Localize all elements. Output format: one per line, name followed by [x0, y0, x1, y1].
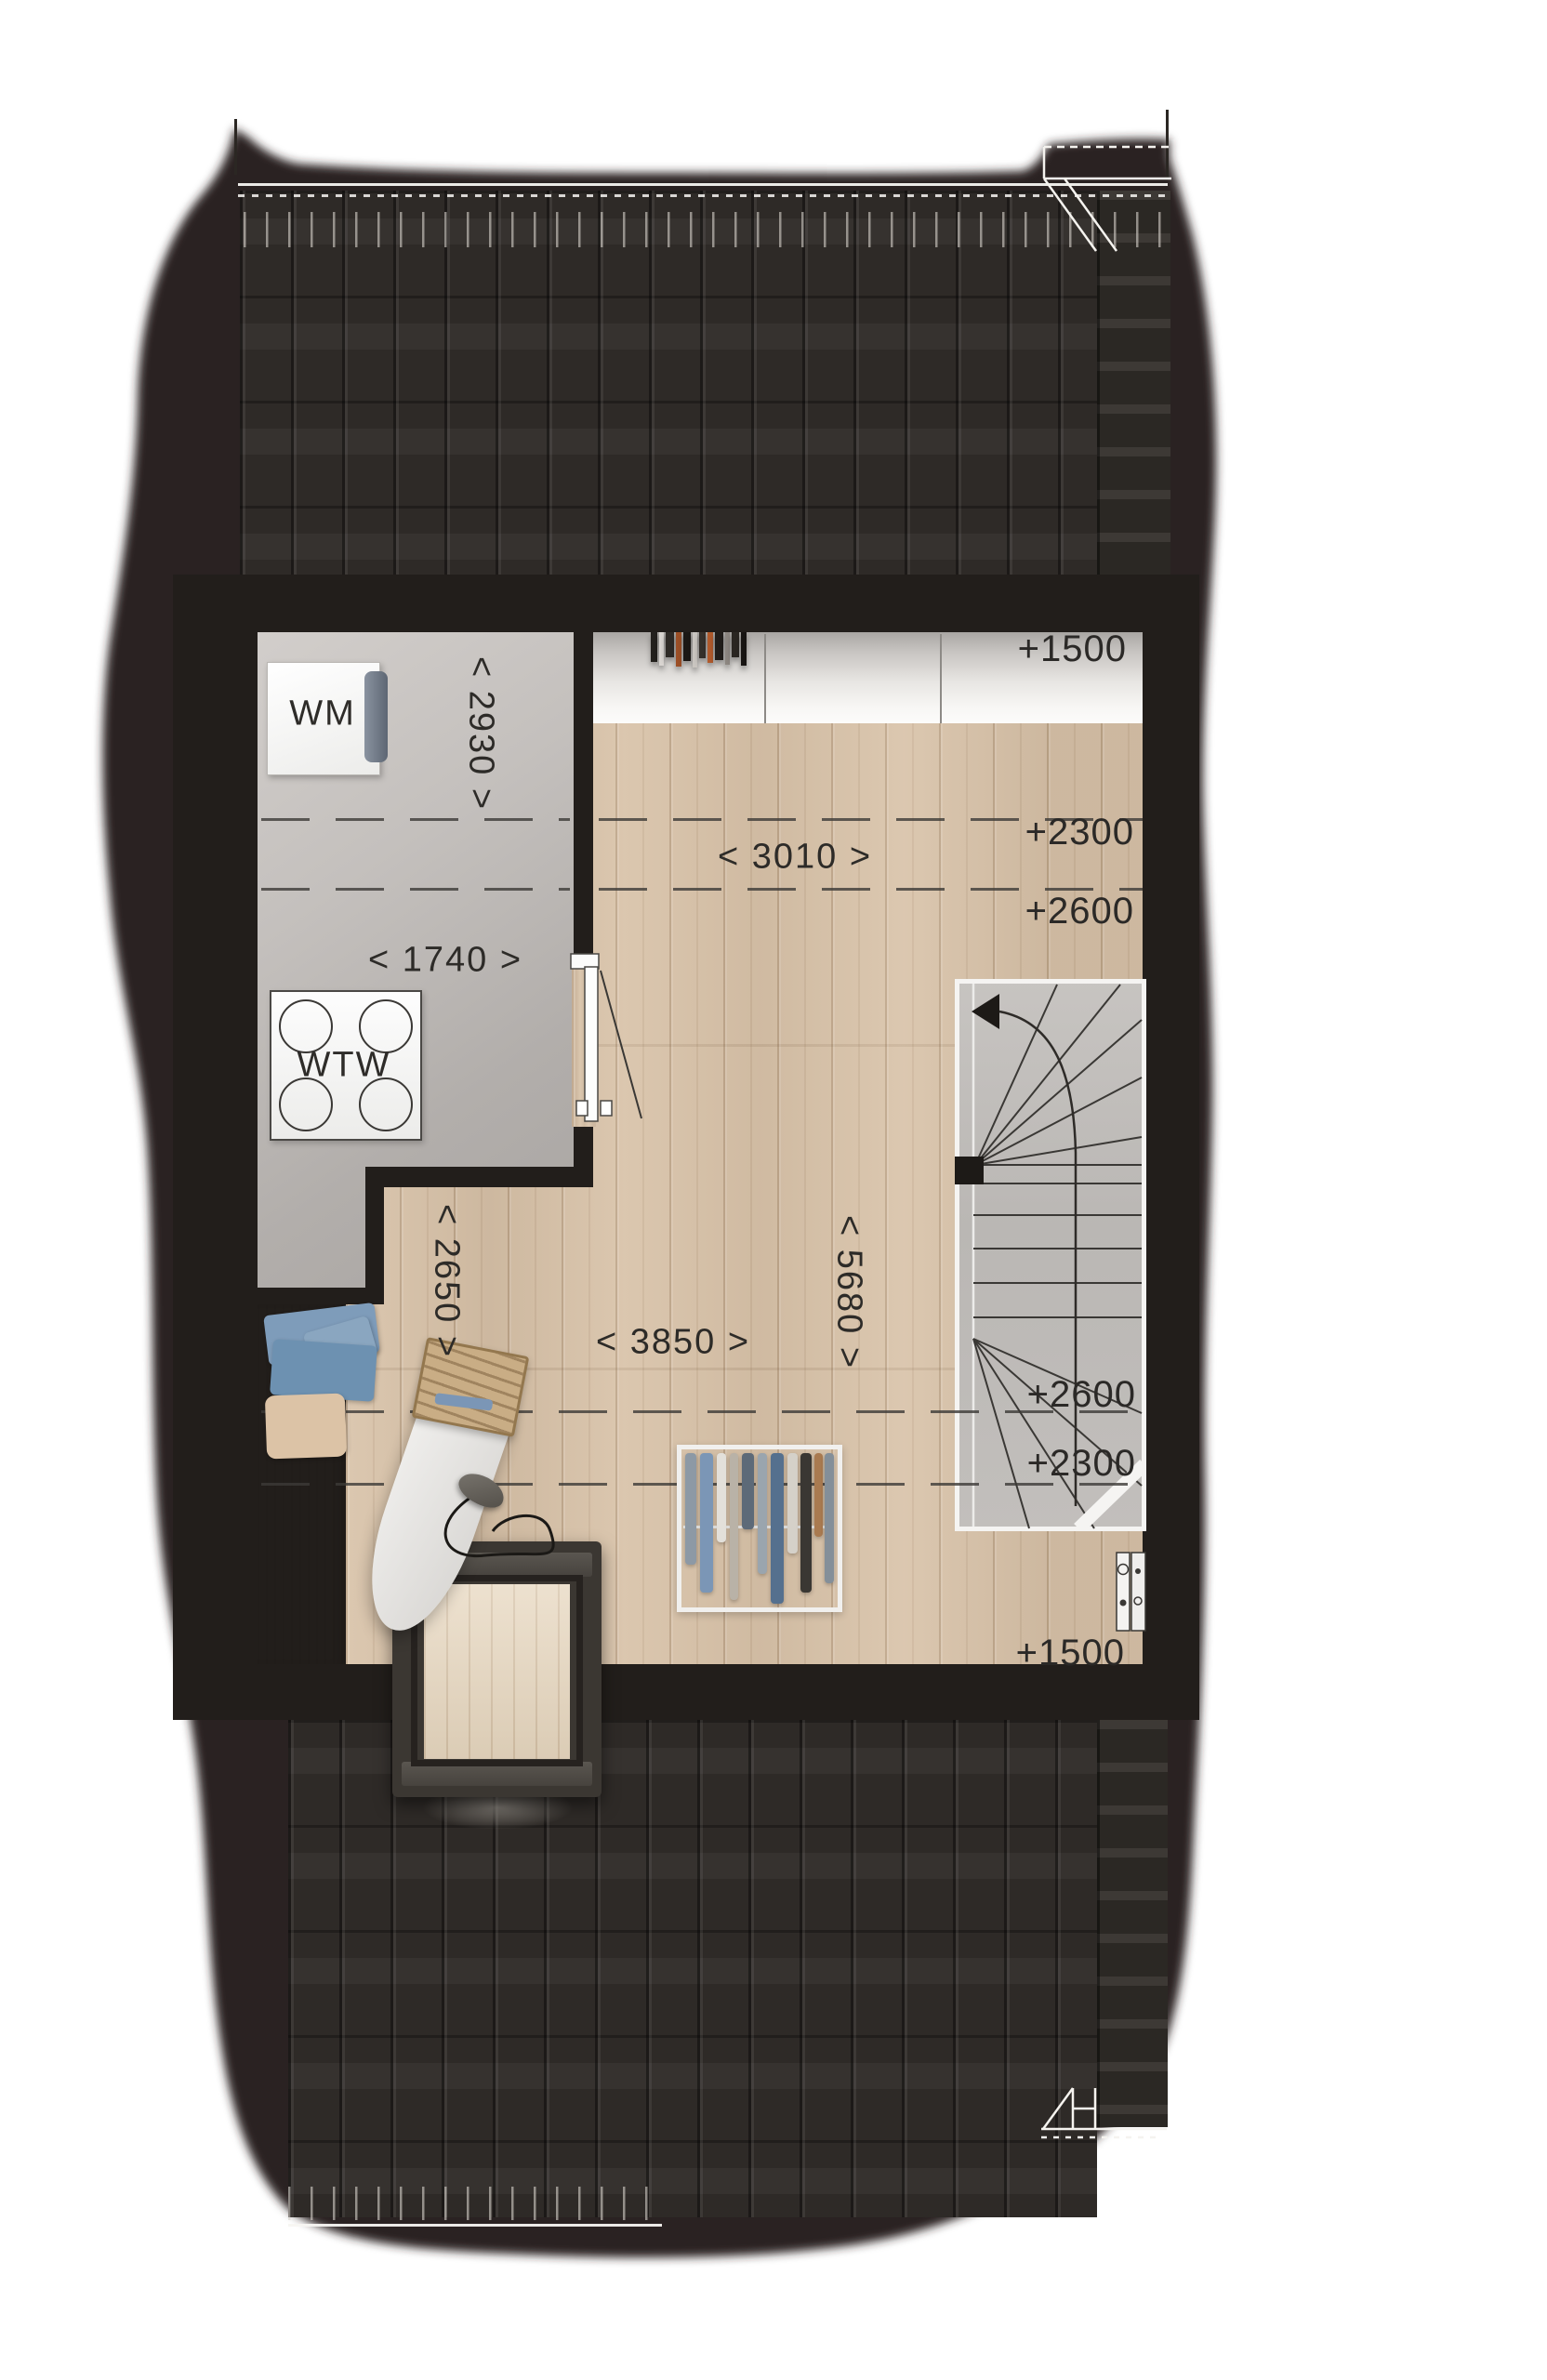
hanging-garment — [730, 1453, 738, 1600]
folded-shirt — [265, 1394, 347, 1460]
roof-ridge-strip-bottom-right — [1097, 1720, 1168, 2127]
hanging-garment — [685, 1453, 696, 1565]
book-spine — [715, 632, 723, 660]
headroom-dash-lower-1 — [261, 1410, 1143, 1413]
height-marker-upper-b: +2600 — [1025, 891, 1134, 932]
wtw-fan-circle — [279, 1078, 333, 1131]
hanging-garment — [825, 1453, 834, 1583]
iron-cable — [409, 1464, 604, 1594]
roof-eave-dotted-top — [238, 194, 1168, 197]
book-spine — [699, 632, 706, 658]
dimension-room-depth-right: < 5680 > — [829, 1215, 869, 1369]
hanging-garment — [814, 1453, 823, 1537]
clothes-rack — [677, 1445, 842, 1612]
roof-eave-line-bottom-left — [288, 2224, 662, 2227]
hanging-garment — [771, 1453, 784, 1604]
shelf-divider-line-2 — [940, 634, 942, 723]
hanging-garment — [758, 1453, 767, 1574]
ridge-end-line-top-left — [234, 119, 237, 175]
washing-machine-door — [364, 671, 388, 762]
door-hinge — [601, 1101, 612, 1116]
height-marker-lower-b: +2300 — [1027, 1443, 1136, 1485]
dimension-room-width-top: < 3010 > — [718, 838, 872, 878]
roof-detail-top-right — [1037, 130, 1176, 256]
hanging-garment — [742, 1453, 754, 1529]
headroom-dash-upper-1-left — [261, 818, 570, 821]
book-spine — [693, 632, 697, 668]
hanging-garment — [700, 1453, 713, 1593]
hanging-garment — [717, 1453, 726, 1542]
book-row — [651, 632, 747, 671]
roof-batten-ticks-top — [244, 212, 1162, 247]
interior-door — [567, 950, 655, 1131]
height-marker-lower-a: +2600 — [1027, 1374, 1136, 1416]
height-marker-upper-a: +2300 — [1025, 812, 1134, 853]
book-spine — [707, 632, 713, 663]
door-hinge — [576, 1101, 588, 1116]
wall-fixture — [1116, 1549, 1147, 1634]
book-spine — [741, 632, 747, 666]
washing-machine-label: WM — [289, 694, 356, 734]
book-spine — [666, 632, 674, 657]
headroom-dash-upper-2-left — [261, 888, 570, 891]
door-swing-line — [601, 971, 641, 1118]
dimension-laundry-width: < 1740 > — [368, 941, 522, 981]
wtw-fan-circle — [359, 1078, 413, 1131]
book-spine — [732, 632, 739, 657]
height-marker-top-right: +1500 — [1018, 628, 1127, 670]
shelf-divider-line-1 — [764, 634, 766, 723]
roof-batten-ticks-bottom — [288, 2187, 662, 2220]
dimension-room-width-bottom: < 3850 > — [596, 1323, 750, 1363]
attic-floorplan: WM WTW — [0, 0, 1547, 2380]
book-spine — [651, 632, 657, 662]
roof-eave-line-top — [238, 183, 1168, 186]
book-spine — [725, 632, 730, 665]
roof-tiles-top — [240, 191, 1169, 575]
basket-clothes — [434, 1393, 493, 1410]
dimension-room-depth-left: < 2650 > — [427, 1204, 467, 1358]
door-leaf — [585, 967, 598, 1121]
book-spine — [676, 632, 681, 667]
heat-recovery-unit-label: WTW — [297, 1046, 391, 1086]
folded-jeans — [270, 1339, 377, 1402]
height-marker-bottom-right: +1500 — [1016, 1633, 1125, 1674]
book-spine — [659, 632, 664, 666]
hanging-garment — [800, 1453, 812, 1593]
roof-detail-bottom-right — [1034, 2081, 1173, 2146]
skylight-pane — [424, 1584, 570, 1759]
dimension-laundry-depth: < 2930 > — [461, 656, 501, 811]
stair-newel-post — [955, 1157, 984, 1184]
hanging-garment — [787, 1453, 798, 1554]
book-spine — [683, 632, 691, 661]
